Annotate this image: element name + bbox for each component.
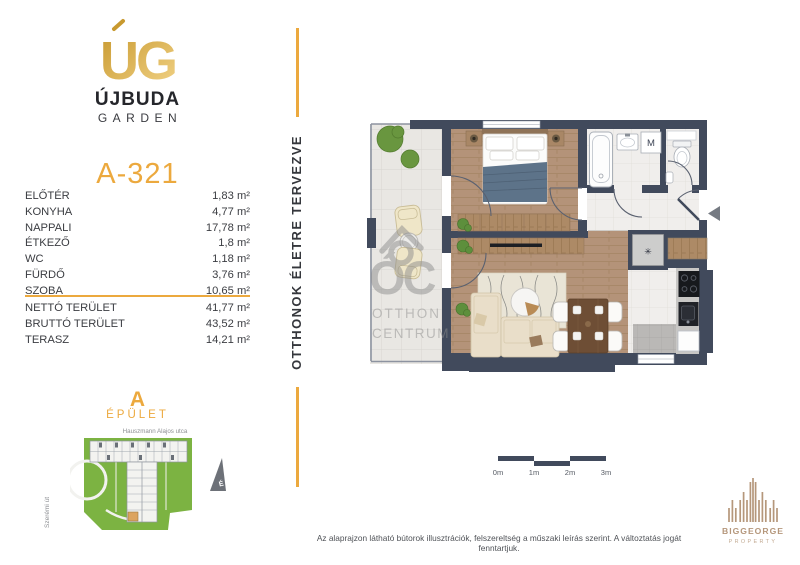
total-area: 43,52 <box>206 318 234 330</box>
room-area: 17,78 <box>206 222 234 234</box>
scale-bar: 0m 1m 2m 3m <box>492 450 616 478</box>
kitchen-sink <box>679 302 699 326</box>
room-area: 4,77 <box>212 206 234 218</box>
bathtub <box>590 132 613 187</box>
unit-id: A-321 <box>25 158 250 191</box>
total-label: BRUTTÓ TERÜLET <box>25 317 125 333</box>
tagline: OTTHONOK ÉLETRE TERVEZVE <box>281 120 311 384</box>
scale-label: 2m <box>565 468 575 477</box>
room-area: 1,83 <box>212 190 234 202</box>
coffee-table <box>511 288 539 316</box>
total-row: TERASZ14,21 m² <box>25 333 250 349</box>
watermark-big: ÓC <box>369 251 436 304</box>
room-row: NAPPALI17,78 m² <box>25 221 250 237</box>
tv-console <box>458 238 584 254</box>
building-label: ÉPÜLET <box>25 409 250 421</box>
tv <box>490 244 542 248</box>
room-label: SZOBA <box>25 284 63 300</box>
room-row: FÜRDŐ3,76 m² <box>25 268 250 284</box>
biggeorge-logo: BIGGEORGE PROPERTY <box>712 468 794 548</box>
wardrobe <box>458 214 570 231</box>
gold-rule-top <box>296 28 299 117</box>
scale-label: 0m <box>493 468 503 477</box>
ujbuda-garden-logo: UG ÚJBUDA GARDEN <box>80 18 195 130</box>
total-row: NETTÓ TERÜLET41,77 m² <box>25 301 250 317</box>
logo-monogram: UG <box>100 31 175 91</box>
entrance-arrow-icon <box>708 206 720 221</box>
toilet <box>673 141 691 167</box>
room-label: ÉTKEZŐ <box>25 236 70 252</box>
watermark-line2: CENTRUM <box>372 326 450 341</box>
area-unit: m² <box>237 206 250 218</box>
scale-label: 3m <box>601 468 611 477</box>
cooktop <box>679 271 700 297</box>
totals-table: NETTÓ TERÜLET41,77 m² BRUTTÓ TERÜLET43,5… <box>25 301 250 348</box>
area-unit: m² <box>237 222 250 234</box>
room-area: 1,18 <box>212 253 234 265</box>
tagline-text: OTTHONOK ÉLETRE TERVEZVE <box>289 135 304 370</box>
biggeorge-icon <box>729 478 777 522</box>
logo-sub: GARDEN <box>98 111 182 125</box>
street-name-top: Hauszmann Alajos utca <box>123 428 188 435</box>
floor-plan: ✳ <box>362 110 722 378</box>
scale-label: 1m <box>529 468 539 477</box>
area-unit: m² <box>237 269 250 281</box>
room-row: KONYHA4,77 m² <box>25 205 250 221</box>
room-label: ELŐTÉR <box>25 189 70 205</box>
total-area: 14,21 <box>206 334 234 346</box>
kitchen-counter <box>668 238 707 259</box>
north-arrow: É <box>207 456 233 494</box>
biggeorge-name: BIGGEORGE <box>722 526 784 536</box>
area-unit: m² <box>237 334 250 346</box>
area-unit: m² <box>237 253 250 265</box>
area-unit: m² <box>237 190 250 202</box>
wc-basin <box>666 172 673 183</box>
room-row: ÉTKEZŐ1,8 m² <box>25 236 250 252</box>
bed <box>482 129 548 204</box>
u-accent-mark <box>114 21 123 29</box>
disclaimer: Az alaprajzon látható bútorok illusztrác… <box>299 533 699 553</box>
total-area: 41,77 <box>206 302 234 314</box>
room-label: NAPPALI <box>25 221 71 237</box>
area-unit: m² <box>237 302 250 314</box>
washing-machine: M <box>641 132 661 153</box>
kitchen-appliance <box>678 331 699 351</box>
room-area: 1,8 <box>218 237 234 249</box>
shaft-symbol: ✳ <box>644 247 652 257</box>
total-label: TERASZ <box>25 333 69 349</box>
room-label: FÜRDŐ <box>25 268 65 284</box>
washing-machine-label: M <box>647 138 655 149</box>
washbasin <box>617 134 638 151</box>
biggeorge-sub: PROPERTY <box>729 539 778 545</box>
highlighted-unit <box>128 512 138 521</box>
watermark-line1: OTTHON <box>372 306 441 321</box>
total-label: NETTÓ TERÜLET <box>25 301 117 317</box>
site-map: Hauszmann Alajos utca <box>70 424 205 549</box>
room-label: WC <box>25 252 44 268</box>
brochure-page: UG ÚJBUDA GARDEN A-321 ELŐTÉR1,83 m² KON… <box>0 0 800 565</box>
total-row: BRUTTÓ TERÜLET43,52 m² <box>25 317 250 333</box>
room-row: SZOBA10,65 m² <box>25 284 250 300</box>
area-unit: m² <box>237 237 250 249</box>
hall-floor <box>587 193 699 230</box>
logo-name: ÚJBUDA <box>95 88 180 110</box>
room-row: ELŐTÉR1,83 m² <box>25 189 250 205</box>
room-label: KONYHA <box>25 205 72 221</box>
gold-rule-bottom <box>296 387 299 487</box>
gold-divider <box>25 295 250 297</box>
room-row: WC1,18 m² <box>25 252 250 268</box>
room-table: ELŐTÉR1,83 m² KONYHA4,77 m² NAPPALI17,78… <box>25 189 250 300</box>
street-name-left: Szerémi út <box>44 458 51 528</box>
shaft: ✳ <box>633 235 664 266</box>
area-unit: m² <box>237 318 250 330</box>
kitchen-gray-tile <box>633 324 677 353</box>
room-area: 3,76 <box>212 269 234 281</box>
